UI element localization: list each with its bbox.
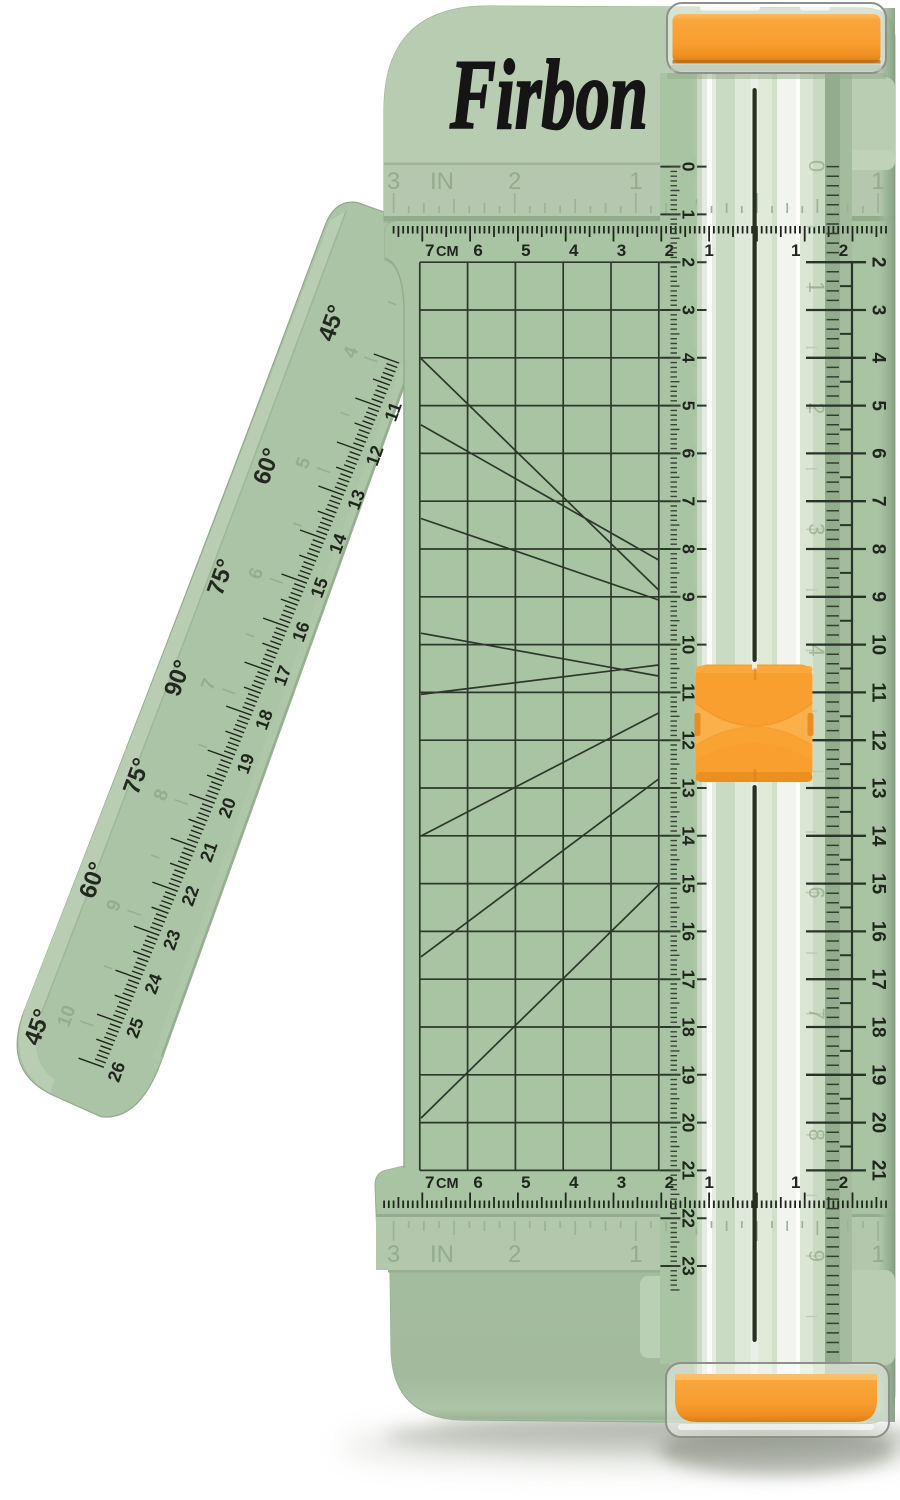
svg-text:1: 1: [704, 241, 713, 260]
svg-text:6: 6: [804, 886, 829, 898]
svg-text:3: 3: [617, 1173, 626, 1192]
svg-text:4: 4: [678, 353, 698, 363]
svg-text:7: 7: [678, 496, 698, 506]
svg-text:18: 18: [678, 1017, 698, 1037]
svg-text:2: 2: [839, 1173, 848, 1192]
svg-text:22: 22: [678, 1208, 698, 1228]
svg-text:7: 7: [425, 1173, 434, 1192]
svg-text:2: 2: [678, 257, 698, 267]
svg-text:4: 4: [867, 353, 888, 364]
svg-text:4: 4: [569, 241, 579, 260]
svg-text:19: 19: [867, 1064, 888, 1085]
svg-text:7: 7: [425, 241, 434, 260]
svg-text:16: 16: [867, 921, 888, 942]
svg-text:1: 1: [804, 281, 829, 293]
svg-text:Firbon: Firbon: [449, 39, 648, 150]
svg-text:3: 3: [678, 305, 698, 315]
svg-text:11: 11: [867, 682, 888, 703]
svg-text:1: 1: [791, 1173, 800, 1192]
svg-text:1: 1: [871, 1241, 884, 1268]
svg-text:8: 8: [678, 544, 698, 554]
svg-text:1: 1: [629, 1241, 642, 1268]
svg-text:17: 17: [867, 969, 888, 990]
svg-text:7: 7: [804, 1008, 829, 1020]
svg-text:9: 9: [867, 592, 888, 603]
svg-text:CM: CM: [436, 244, 459, 260]
svg-text:15: 15: [678, 874, 698, 894]
svg-text:16: 16: [678, 922, 698, 942]
svg-text:9: 9: [804, 1250, 829, 1262]
svg-text:2: 2: [804, 402, 829, 414]
svg-text:6: 6: [678, 449, 698, 459]
svg-text:2: 2: [839, 241, 848, 260]
svg-text:5: 5: [521, 1173, 530, 1192]
svg-text:IN: IN: [430, 1241, 454, 1268]
svg-text:20: 20: [678, 1113, 698, 1133]
svg-text:3: 3: [617, 241, 626, 260]
svg-text:10: 10: [867, 634, 888, 655]
svg-text:13: 13: [867, 777, 888, 798]
svg-text:2: 2: [867, 257, 888, 268]
svg-text:7: 7: [867, 496, 888, 507]
svg-text:3: 3: [387, 168, 400, 195]
svg-text:20: 20: [867, 1112, 888, 1133]
svg-text:0: 0: [678, 162, 698, 172]
svg-text:3: 3: [867, 305, 888, 316]
svg-text:8: 8: [804, 1129, 829, 1141]
svg-text:11: 11: [678, 683, 698, 702]
svg-text:17: 17: [678, 969, 698, 988]
svg-text:4: 4: [569, 1173, 579, 1192]
svg-text:1: 1: [871, 168, 884, 195]
svg-text:1: 1: [704, 1173, 713, 1192]
svg-text:23: 23: [678, 1256, 698, 1276]
svg-text:1: 1: [629, 168, 642, 195]
svg-text:6: 6: [473, 1173, 482, 1192]
svg-text:CM: CM: [436, 1176, 459, 1192]
svg-text:0: 0: [804, 160, 829, 172]
svg-text:19: 19: [678, 1065, 698, 1085]
svg-text:5: 5: [678, 401, 698, 411]
svg-text:3: 3: [804, 523, 829, 535]
svg-text:6: 6: [867, 448, 888, 459]
svg-text:21: 21: [867, 1160, 888, 1182]
svg-text:5: 5: [521, 241, 530, 260]
svg-text:14: 14: [678, 826, 698, 846]
svg-text:2: 2: [508, 1241, 521, 1268]
svg-text:10: 10: [678, 635, 698, 655]
svg-text:1: 1: [678, 210, 698, 220]
svg-text:12: 12: [867, 730, 888, 751]
svg-text:15: 15: [867, 873, 888, 895]
svg-text:5: 5: [867, 400, 888, 411]
svg-text:IN: IN: [430, 168, 454, 195]
svg-text:2: 2: [508, 168, 521, 195]
svg-text:13: 13: [678, 778, 698, 798]
svg-text:6: 6: [473, 241, 482, 260]
svg-text:18: 18: [867, 1016, 888, 1037]
svg-text:3: 3: [387, 1241, 400, 1268]
svg-text:8: 8: [867, 544, 888, 555]
svg-text:21: 21: [678, 1161, 698, 1181]
svg-text:1: 1: [791, 241, 800, 260]
svg-text:4: 4: [804, 644, 829, 656]
svg-text:9: 9: [678, 592, 698, 602]
svg-text:14: 14: [867, 825, 888, 847]
